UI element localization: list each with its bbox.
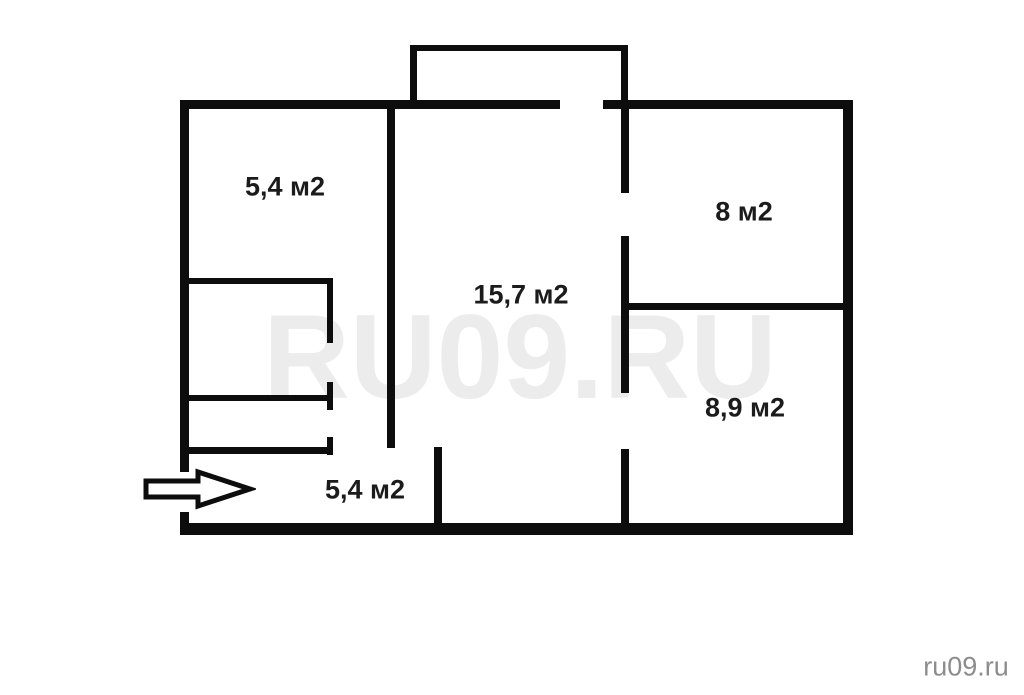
outer-wall-top-right-segment: [603, 100, 853, 109]
interior-wall-living-right-lower: [621, 449, 629, 527]
room-top-left-area-label: 5,4 м2: [245, 172, 325, 203]
room-top-right-area-label: 8 м2: [715, 197, 773, 228]
floor-plan: RU09.RU 5,4 м2 8 м2 15,7 м2 8,9 м2 5,4 м…: [0, 0, 1024, 695]
balcony-wall-right: [621, 45, 628, 100]
interior-wall-living-left: [387, 100, 395, 448]
room-bottom-right-area-label: 8,9 м2: [705, 393, 785, 424]
interior-wall-hallway-right: [434, 447, 442, 529]
balcony-wall-top: [410, 45, 628, 51]
outer-wall-right: [843, 100, 853, 535]
outer-wall-bottom: [180, 523, 853, 535]
outer-wall-top-left-segment: [180, 100, 560, 109]
closet-wall-middle: [185, 395, 333, 401]
entrance-arrow-icon: [142, 466, 256, 512]
balcony-wall-left: [410, 45, 417, 100]
closet-wall-top: [185, 278, 333, 284]
interior-wall-living-right-mid: [621, 236, 629, 393]
room-living-area-label: 15,7 м2: [473, 280, 568, 311]
interior-wall-living-right-upper: [621, 100, 629, 193]
interior-wall-room-divider: [625, 303, 853, 310]
outer-wall-left-upper: [180, 100, 189, 472]
site-url-label: ru09.ru: [923, 652, 1009, 683]
closet-wall-right-upper: [327, 278, 333, 343]
hallway-area-label: 5,4 м2: [325, 475, 405, 506]
closet-wall-bottom: [185, 447, 333, 454]
